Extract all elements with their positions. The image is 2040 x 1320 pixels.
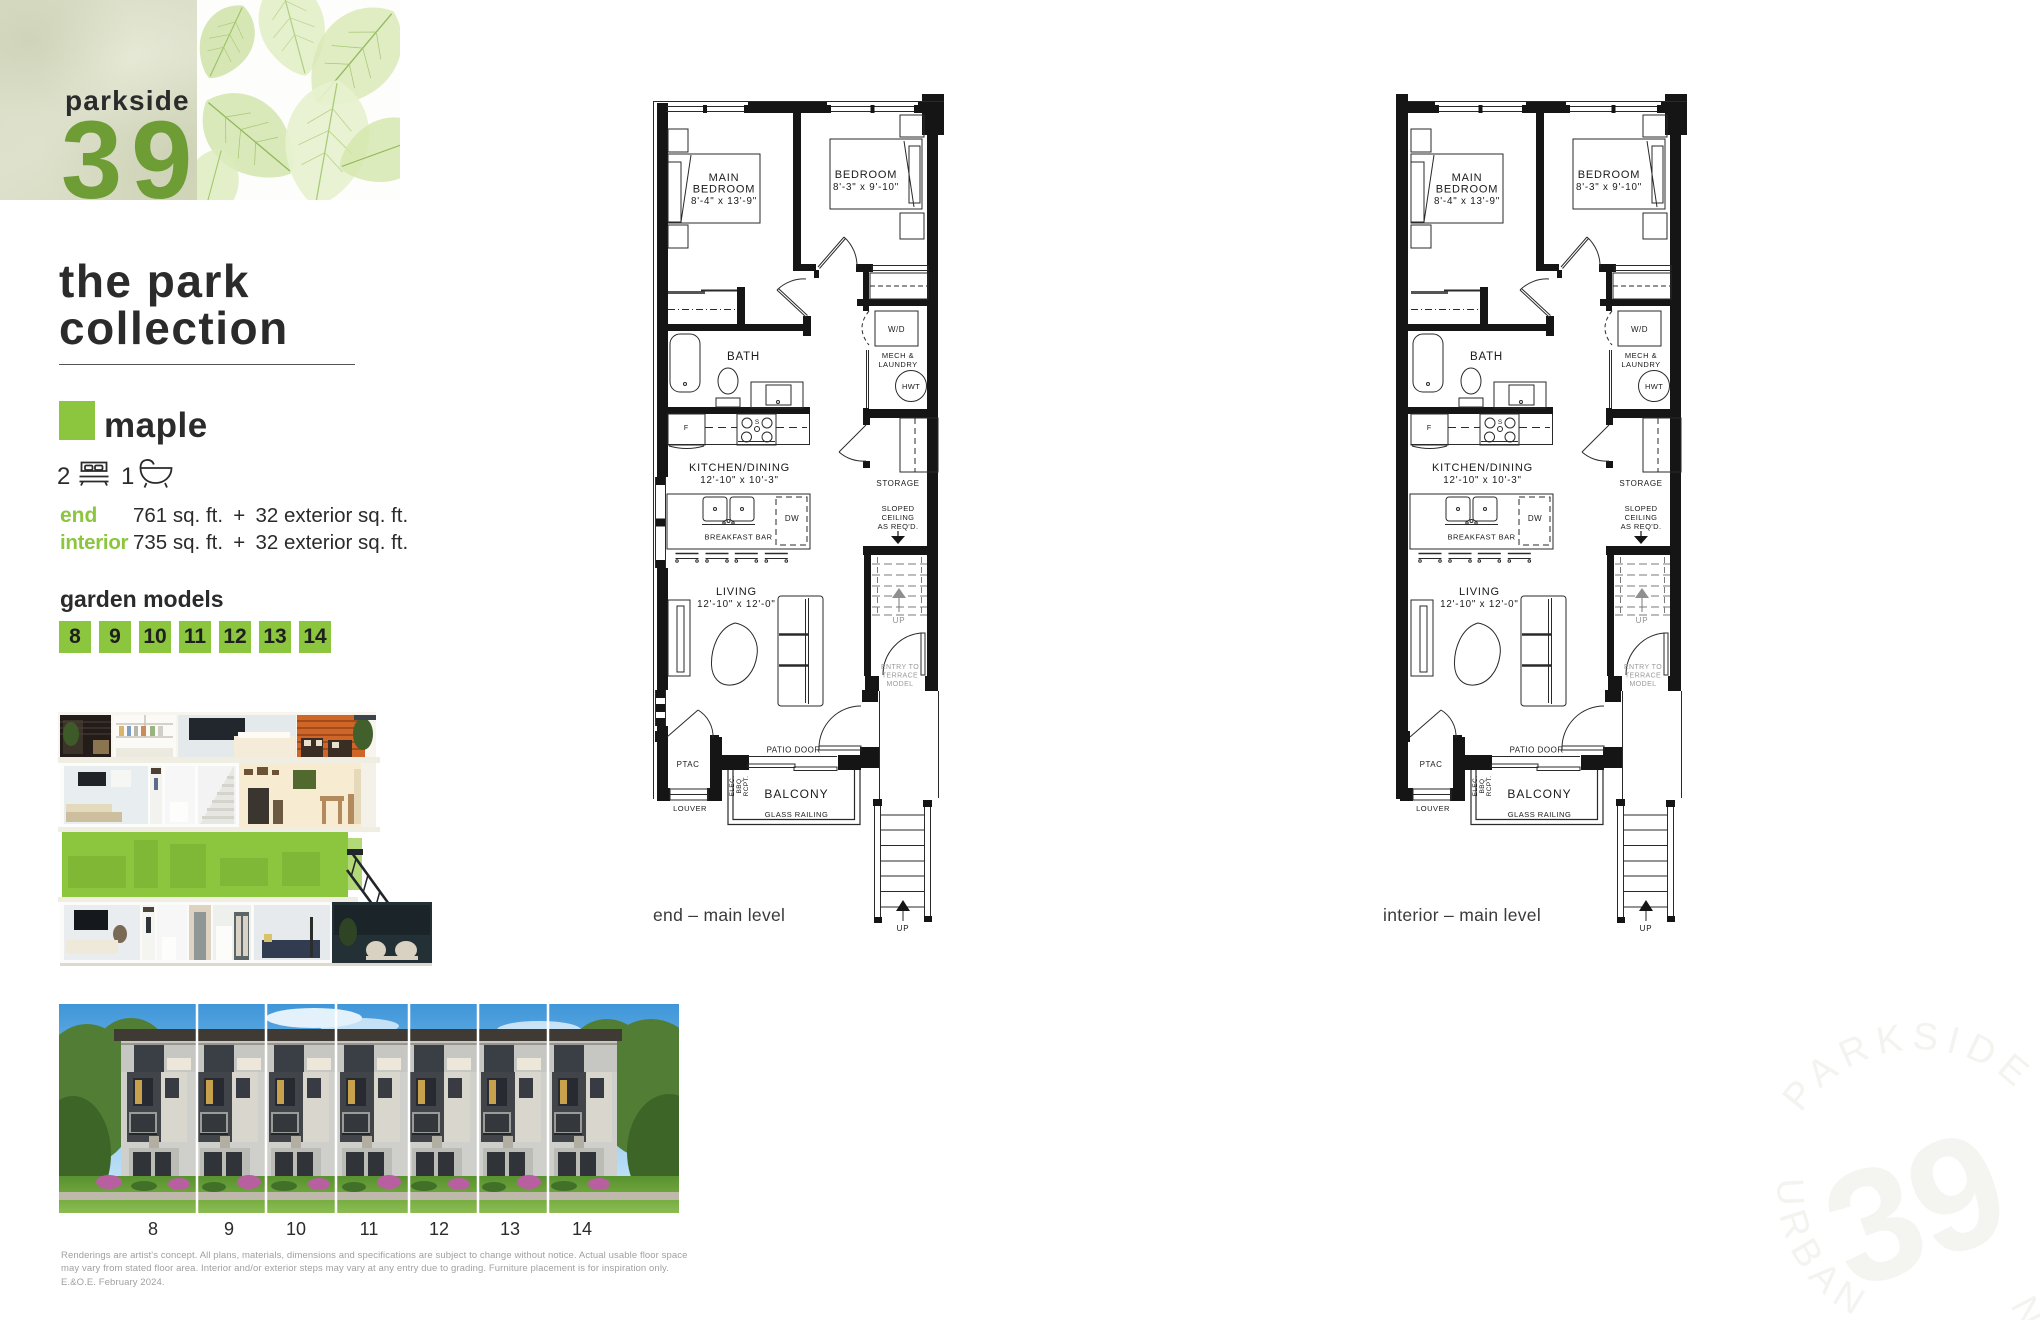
svg-text:8'-3" x 9'-10": 8'-3" x 9'-10" [1576,182,1642,193]
svg-text:BEDROOM: BEDROOM [1578,169,1640,181]
svg-text:MAIN: MAIN [709,172,740,184]
svg-text:BREAKFAST BAR: BREAKFAST BAR [704,533,772,542]
svg-text:GLASS RAILING: GLASS RAILING [765,810,829,819]
svg-text:8'-3" x 9'-10": 8'-3" x 9'-10" [833,182,899,193]
svg-text:PARKSIDE: PARKSIDE [1775,1016,2040,1119]
svg-text:BEDROOM: BEDROOM [693,184,755,196]
svg-text:LIVING: LIVING [716,586,757,598]
svg-text:BATH: BATH [727,351,760,363]
svg-text:CEILING: CEILING [882,513,915,522]
svg-text:39: 39 [61,99,201,210]
svg-text:KITCHEN/DINING: KITCHEN/DINING [689,462,790,474]
svg-text:DW: DW [785,514,799,523]
svg-text:W/D: W/D [888,325,905,334]
svg-text:12'-10" x 12'-0": 12'-10" x 12'-0" [697,599,776,610]
svg-text:ENTRY TO: ENTRY TO [881,664,919,671]
svg-text:KITCHEN/DINING: KITCHEN/DINING [1432,462,1533,474]
svg-text:DW: DW [1528,514,1542,523]
svg-text:12'-10" x 10'-3": 12'-10" x 10'-3" [1443,475,1522,486]
svg-text:W/D: W/D [1631,325,1648,334]
svg-text:S: S [1498,419,1503,426]
svg-text:RCPT.: RCPT. [743,776,750,797]
svg-text:TERRACE: TERRACE [882,673,918,680]
svg-text:BATH: BATH [1470,351,1503,363]
svg-text:BEDROOM: BEDROOM [835,169,897,181]
svg-text:GLASS RAILING: GLASS RAILING [1508,810,1572,819]
svg-text:UP: UP [893,616,906,625]
svg-text:MECH &: MECH & [1625,351,1657,360]
svg-text:ELEC.: ELEC. [729,776,736,797]
svg-text:BREAKFAST BAR: BREAKFAST BAR [1447,533,1515,542]
svg-text:8'-4" x 13'-9": 8'-4" x 13'-9" [1434,196,1500,207]
svg-text:BBQ: BBQ [736,779,743,794]
svg-text:N: N [2002,1290,2040,1320]
svg-text:BBQ: BBQ [1479,779,1486,794]
svg-text:AS REQ'D.: AS REQ'D. [878,522,919,531]
svg-text:F: F [684,425,688,432]
svg-text:LIVING: LIVING [1459,586,1500,598]
svg-text:S: S [755,419,760,426]
svg-text:SLOPED: SLOPED [1625,504,1658,513]
svg-text:STORAGE: STORAGE [1619,479,1662,488]
svg-text:RCPT.: RCPT. [1486,776,1493,797]
svg-text:LAUNDRY: LAUNDRY [1621,360,1660,369]
svg-text:CEILING: CEILING [1625,513,1658,522]
svg-text:ELEC.: ELEC. [1472,776,1479,797]
svg-text:PTAC: PTAC [1420,760,1443,769]
svg-text:MODEL: MODEL [1630,681,1657,688]
svg-text:HWT: HWT [1645,382,1663,391]
svg-text:ENTRY TO: ENTRY TO [1624,664,1662,671]
svg-text:STORAGE: STORAGE [876,479,919,488]
svg-text:8'-4" x 13'-9": 8'-4" x 13'-9" [691,196,757,207]
svg-text:BALCONY: BALCONY [1507,787,1571,801]
svg-text:HWT: HWT [902,382,920,391]
svg-text:PATIO DOOR: PATIO DOOR [767,746,821,755]
svg-text:LOUVER: LOUVER [673,804,707,813]
svg-text:PTAC: PTAC [677,760,700,769]
svg-text:MAIN: MAIN [1452,172,1483,184]
svg-text:UP: UP [897,924,910,933]
svg-text:AS REQ'D.: AS REQ'D. [1621,522,1662,531]
svg-text:MODEL: MODEL [887,681,914,688]
svg-text:MECH &: MECH & [882,351,914,360]
svg-text:BEDROOM: BEDROOM [1436,184,1498,196]
svg-text:UP: UP [1636,616,1649,625]
svg-text:12'-10" x 12'-0": 12'-10" x 12'-0" [1440,599,1519,610]
svg-text:12'-10" x 10'-3": 12'-10" x 10'-3" [700,475,779,486]
svg-text:F: F [1427,425,1431,432]
svg-text:LOUVER: LOUVER [1416,804,1450,813]
svg-text:BALCONY: BALCONY [764,787,828,801]
svg-text:UP: UP [1640,924,1653,933]
svg-text:TERRACE: TERRACE [1625,673,1661,680]
svg-text:LAUNDRY: LAUNDRY [878,360,917,369]
svg-text:SLOPED: SLOPED [882,504,915,513]
svg-text:PATIO DOOR: PATIO DOOR [1510,746,1564,755]
